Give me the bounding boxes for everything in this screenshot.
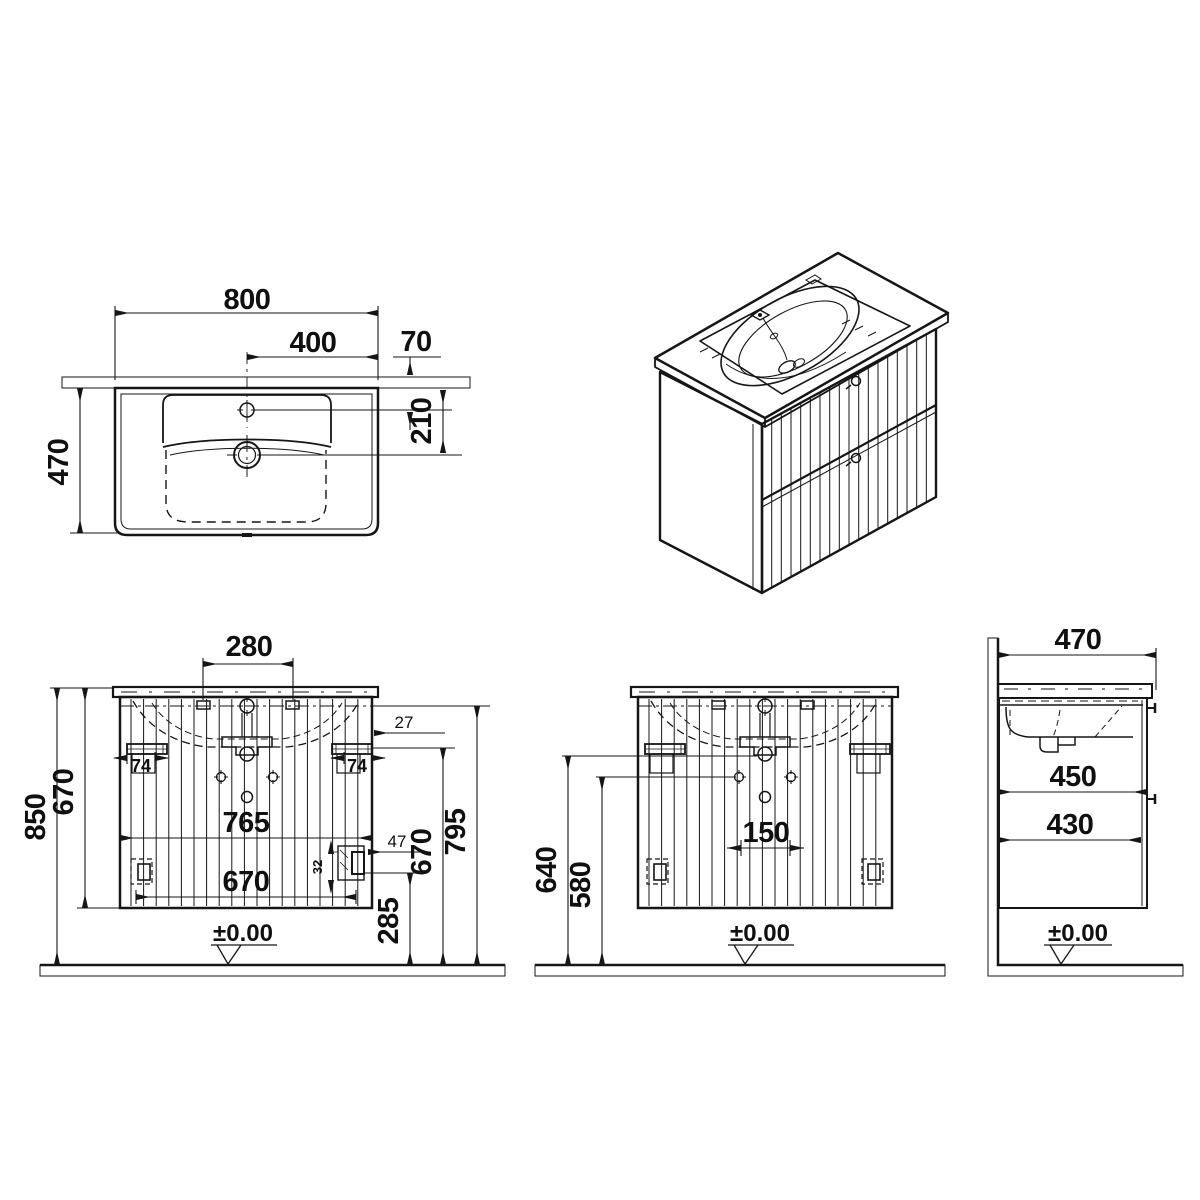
iso-cabinet-left-face [660,372,762,593]
deck-slot-right [286,701,299,709]
dim-plan-width: 800 [224,284,271,316]
datum-label: ±0.00 [1048,920,1108,947]
plan-view: 800 400 70 210 470 [43,284,470,537]
basin-hidden-outline [651,701,877,747]
front-view-b: 640 580 150 ±0.00 [531,687,945,976]
iso-deck-ticks [700,320,876,358]
dim-plan-half-width: 400 [290,327,337,359]
basin-hidden-inner [152,703,342,739]
iso-faucet-dot [758,313,762,317]
hidden-fitting-left [131,859,152,884]
dim-slot-spacing: 280 [226,631,273,663]
overflow-trap [222,737,272,755]
drain-pipe-hole [758,747,772,761]
datum-symbol: ±0.00 [211,920,277,964]
front-view-a: 280 850 670 765 670 74 74 27 47 32 795 6 [20,631,505,976]
iso-flutes [772,334,927,588]
iso-countertop-edge [655,313,948,427]
dim-plan-depth: 470 [43,439,75,486]
overflow-trap [740,737,790,755]
basin-hidden-outline [133,701,359,747]
dim-front-width: 670 [223,866,270,898]
dim-body-width: 765 [223,807,270,839]
isometric-view [655,253,948,593]
bowl-body-hidden [166,450,326,522]
deck-slot-left [712,701,725,709]
dim-rail-height: 670 [406,829,438,876]
technical-drawing-canvas: 800 400 70 210 470 [0,0,1200,1200]
side-view: 470 450 430 ±0.00 [988,624,1183,976]
hidden-fitting-left [647,859,668,884]
dim-plan-drain-offset: 210 [406,398,438,445]
bracket-left [645,744,685,773]
fixing-hole-left [732,770,746,784]
datum-symbol: ±0.00 [728,920,794,964]
dim-drain-height: 640 [531,847,563,894]
faucet-stem [242,713,252,737]
dim-side-depth: 470 [1055,624,1102,656]
fixing-hole-right [784,770,798,784]
dim-siphon-width: 150 [743,817,790,849]
deck-slot-right [801,701,814,709]
datum-label: ±0.00 [213,920,273,947]
dim-side-top-depth: 450 [1050,761,1097,793]
dim-side-offset: 27 [395,713,414,732]
drawer-slide-detail [332,846,364,880]
floor-hatch [535,965,945,976]
dim-bracket-left: 74 [131,756,151,776]
dim-slide-offset: 47 [388,832,407,851]
faucet-stem [760,713,770,737]
wall-hatch-strip [62,377,470,388]
dim-carcass-height: 795 [440,808,472,855]
dim-bracket-right: 74 [347,756,367,776]
drain-pipe-hole [240,747,254,761]
handle-pin-top [1147,703,1155,713]
cabinet-side-body [999,698,1147,908]
basin-front-notch [242,533,252,537]
center-hole [242,792,253,803]
dim-clearance-height: 285 [373,897,405,944]
floor-hatch [40,965,505,976]
basin-hidden-inner [670,703,860,739]
dim-side-drawer-depth: 430 [1047,809,1094,841]
hidden-fitting-right [862,859,883,884]
dim-fixing-height: 580 [565,862,597,909]
iso-countertop [655,253,948,418]
fixing-hole-right [266,770,280,784]
datum-symbol: ±0.00 [1044,920,1112,964]
handle-pin-bottom [1147,794,1155,804]
bowl-side-profile [1006,706,1133,752]
datum-label: ±0.00 [730,920,790,947]
center-hole [760,792,771,803]
dim-cabinet-height: 670 [48,769,80,816]
dim-slide-height: 32 [310,860,325,874]
dim-plan-wall-offset: 70 [400,326,431,358]
iso-chain [763,318,787,360]
bracket-right [850,744,890,773]
fixing-hole-left [214,770,228,784]
deck-slot-left [197,701,210,709]
countertop-side [998,684,1152,698]
